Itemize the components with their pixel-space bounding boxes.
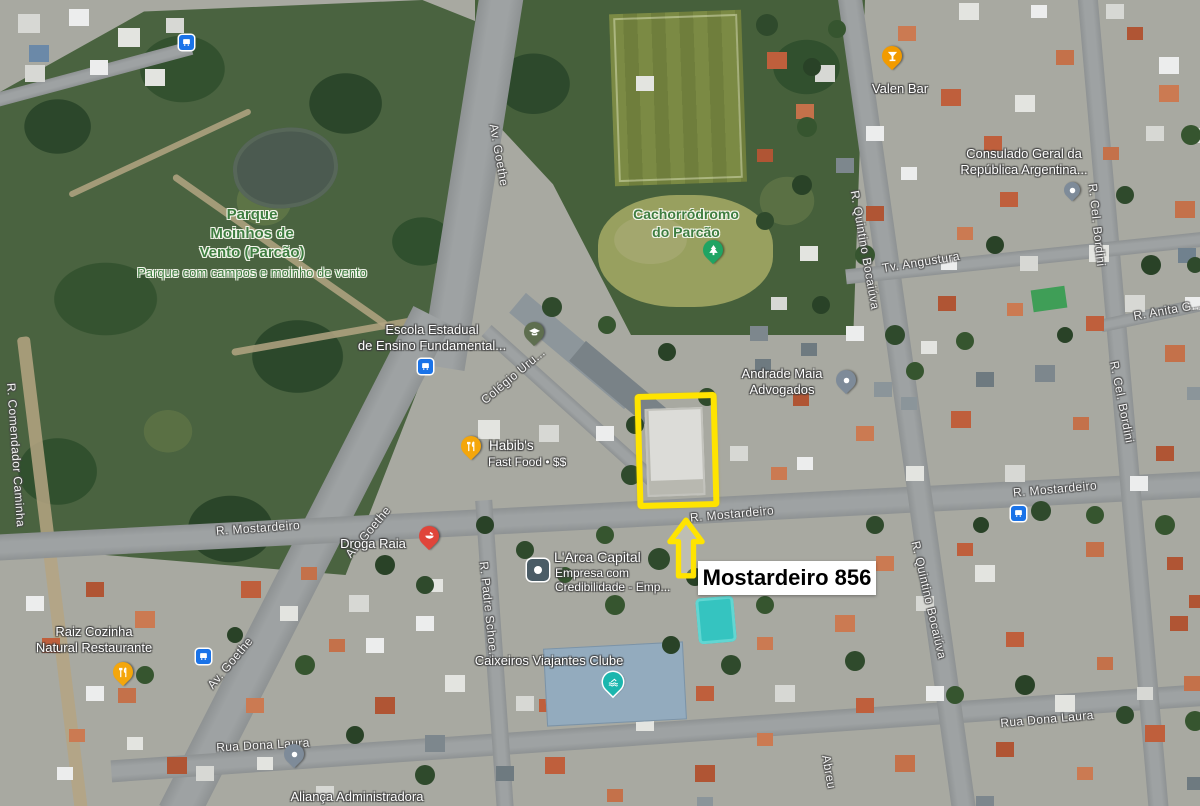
poi-sub-larca: Empresa com Credibilidade - Emp... — [555, 566, 670, 595]
street-label-abreu: Abreu — [819, 754, 839, 790]
place-pin-icon[interactable] — [280, 740, 308, 768]
sports-court — [1031, 286, 1068, 313]
restaurant-pin-icon[interactable] — [457, 432, 485, 460]
soccer-field — [609, 10, 747, 187]
poi-label-andrade[interactable]: Andrade Maia Advogados — [742, 366, 823, 399]
company-square-icon[interactable] — [527, 559, 549, 581]
park-name-label[interactable]: Parque Moinhos de Vento (Parcão) — [199, 206, 304, 262]
place-pin-icon[interactable] — [832, 366, 860, 394]
poi-label-habibs[interactable]: Habib's — [489, 438, 534, 455]
poi-label-alianca[interactable]: Aliança Administradora — [291, 789, 424, 805]
school-pin-icon[interactable] — [520, 318, 548, 346]
place-pin-icon[interactable] — [1061, 179, 1084, 202]
swimming-pool — [695, 595, 737, 644]
transit-station-icon[interactable] — [1011, 506, 1026, 521]
poi-label-droga-raia[interactable]: Droga Raia — [340, 536, 406, 552]
poi-label-raiz[interactable]: Raiz Cozinha Natural Restaurante — [36, 624, 152, 657]
park-subtitle-label: Parque com campos e moinho de vento — [137, 265, 367, 281]
dog-park-label[interactable]: Cachorródromo do Parcão — [633, 206, 739, 241]
poi-label-caixeiros[interactable]: Caixeiros Viajantes Clube — [475, 653, 624, 669]
satellite-map[interactable]: Av. Goethe Av. Goethe Av. Goethe R. Most… — [0, 0, 1200, 806]
pool-pin-icon[interactable] — [599, 668, 627, 696]
transit-station-icon[interactable] — [196, 649, 211, 664]
poi-label-valen-bar[interactable]: Valen Bar — [872, 81, 928, 97]
transit-station-icon[interactable] — [179, 35, 194, 50]
pharmacy-pin-icon[interactable] — [415, 522, 443, 550]
tree-clusters — [0, 0, 14, 14]
poi-label-consulado[interactable]: Consulado Geral da República Argentina..… — [960, 146, 1087, 179]
transit-station-icon[interactable] — [418, 359, 433, 374]
poi-label-larca[interactable]: L'Arca Capital — [554, 549, 641, 567]
highlight-rectangle — [635, 392, 720, 509]
poi-sub-habibs: Fast Food • $$ — [488, 455, 566, 470]
restaurant-pin-icon[interactable] — [109, 658, 137, 686]
road-quintino-bocaiuva — [833, 0, 976, 806]
annotation-address-label: Mostardeiro 856 — [698, 561, 876, 595]
cocktail-pin-icon[interactable] — [878, 42, 906, 70]
tree-pin-icon[interactable] — [699, 236, 727, 264]
street-label-anita: R. Anita G... — [1132, 297, 1200, 323]
poi-label-escola[interactable]: Escola Estadual de Ensino Fundamental... — [358, 322, 506, 355]
